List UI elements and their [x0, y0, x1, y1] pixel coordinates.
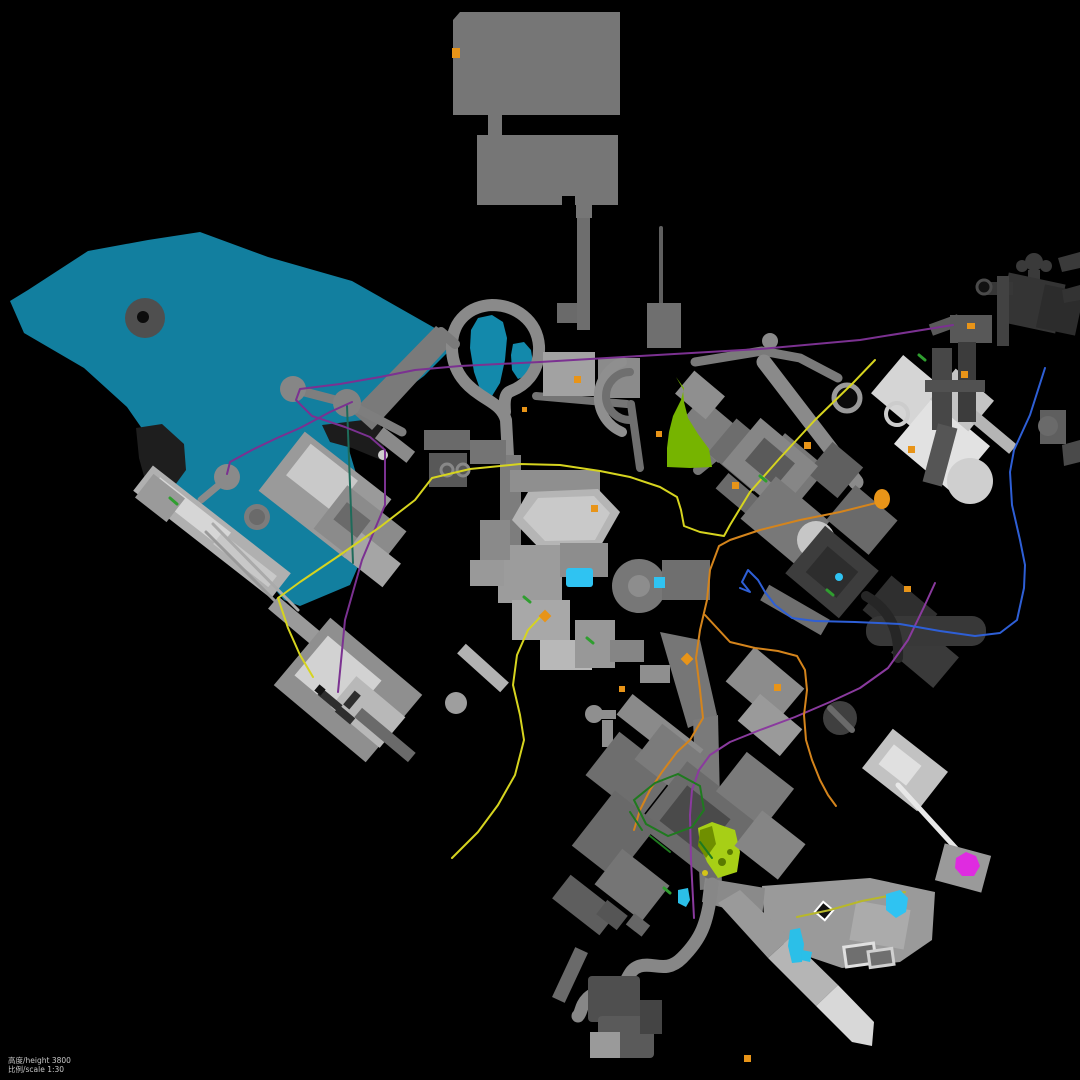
- marker-orange-13: [967, 323, 975, 329]
- map-info-footer: 高度/height 3800 比例/scale 1:30: [8, 1056, 71, 1074]
- north-building-stub: [576, 205, 592, 218]
- marker-orange-5: [732, 482, 739, 489]
- ne-clover-c: [1040, 260, 1052, 272]
- south-small-3: [626, 913, 650, 936]
- north-block: [647, 303, 681, 348]
- green-tick-6: [919, 355, 925, 360]
- corridor-side-square: [557, 303, 577, 323]
- ne-clover-a: [1025, 253, 1043, 271]
- east-low-gray-2: [738, 694, 803, 756]
- scale-label: 比例/scale 1:30: [8, 1065, 71, 1074]
- lake-island-hole: [137, 311, 149, 323]
- grass-tree-2: [727, 849, 733, 855]
- palace-big-circle: [947, 458, 993, 504]
- center-small-2: [640, 665, 670, 683]
- pool-center-square: [654, 577, 665, 588]
- center-west-2: [470, 560, 504, 586]
- north-building-b: [477, 135, 618, 205]
- bottom-block-1: [588, 976, 640, 1022]
- marker-orange-4: [656, 431, 662, 437]
- east-dark-road: [866, 616, 986, 646]
- height-label: 高度/height 3800: [8, 1056, 71, 1065]
- pool-se-2: [801, 950, 812, 962]
- bottom-block-3: [590, 1032, 620, 1058]
- marker-orange-14: [774, 684, 781, 691]
- bridge-to-magenta: [898, 785, 963, 856]
- se-outline-rect-2: [868, 948, 894, 967]
- center-round-inner: [628, 575, 650, 597]
- marker-gold-dot: [702, 870, 708, 876]
- pier-circle-3: [214, 464, 240, 490]
- pier-circle-4-inner: [249, 509, 265, 525]
- roadside-block-2: [429, 453, 467, 487]
- level-map-canvas[interactable]: [0, 0, 1080, 1080]
- marker-orange-ellipse: [874, 489, 890, 509]
- grass-tree-1: [718, 858, 726, 866]
- marker-orange-16: [744, 1055, 751, 1062]
- center-west-1: [480, 520, 510, 560]
- center-south-1: [512, 600, 570, 640]
- north-building-a: [453, 12, 620, 115]
- road-town-vert: [631, 404, 640, 468]
- north-building-neck: [488, 115, 502, 135]
- roadside-block-3: [470, 440, 506, 464]
- marker-orange-15: [904, 586, 911, 592]
- road-knob-west: [378, 450, 388, 460]
- center-south-3: [575, 620, 615, 668]
- pool-center: [566, 568, 593, 587]
- ne-vertical-bar: [997, 276, 1009, 346]
- center-pier-circle: [445, 692, 467, 714]
- north-building-notch: [562, 196, 575, 205]
- center-pier-diagonal: [457, 644, 509, 692]
- marker-orange-2: [574, 376, 581, 383]
- pool-south-town: [678, 888, 690, 907]
- ne-finger-1: [1058, 252, 1080, 272]
- marker-orange-1: [452, 48, 460, 58]
- green-tick-4: [664, 888, 670, 893]
- center-east-block: [662, 560, 710, 600]
- ne-clover-b: [1016, 260, 1028, 272]
- marker-orange-9: [619, 686, 625, 692]
- pond-left: [470, 315, 507, 396]
- marker-orange-11: [908, 446, 915, 453]
- marker-orange-6: [591, 505, 598, 512]
- ne-right-circle: [1038, 416, 1058, 436]
- marker-orange-3: [522, 407, 527, 412]
- north-corridor: [577, 218, 590, 330]
- roadside-block-1: [424, 430, 470, 450]
- ne-crossbar: [925, 380, 985, 392]
- ne-arm-ring: [977, 280, 991, 294]
- center-key-bar: [600, 710, 616, 719]
- pool-east-dot: [835, 573, 843, 581]
- marker-orange-12: [961, 371, 968, 378]
- bottom-block-4: [640, 1000, 662, 1034]
- marker-orange-10: [804, 442, 811, 449]
- center-north-edge: [510, 470, 600, 492]
- center-small-1: [610, 640, 644, 662]
- game-map-viewport: 高度/height 3800 比例/scale 1:30: [0, 0, 1080, 1080]
